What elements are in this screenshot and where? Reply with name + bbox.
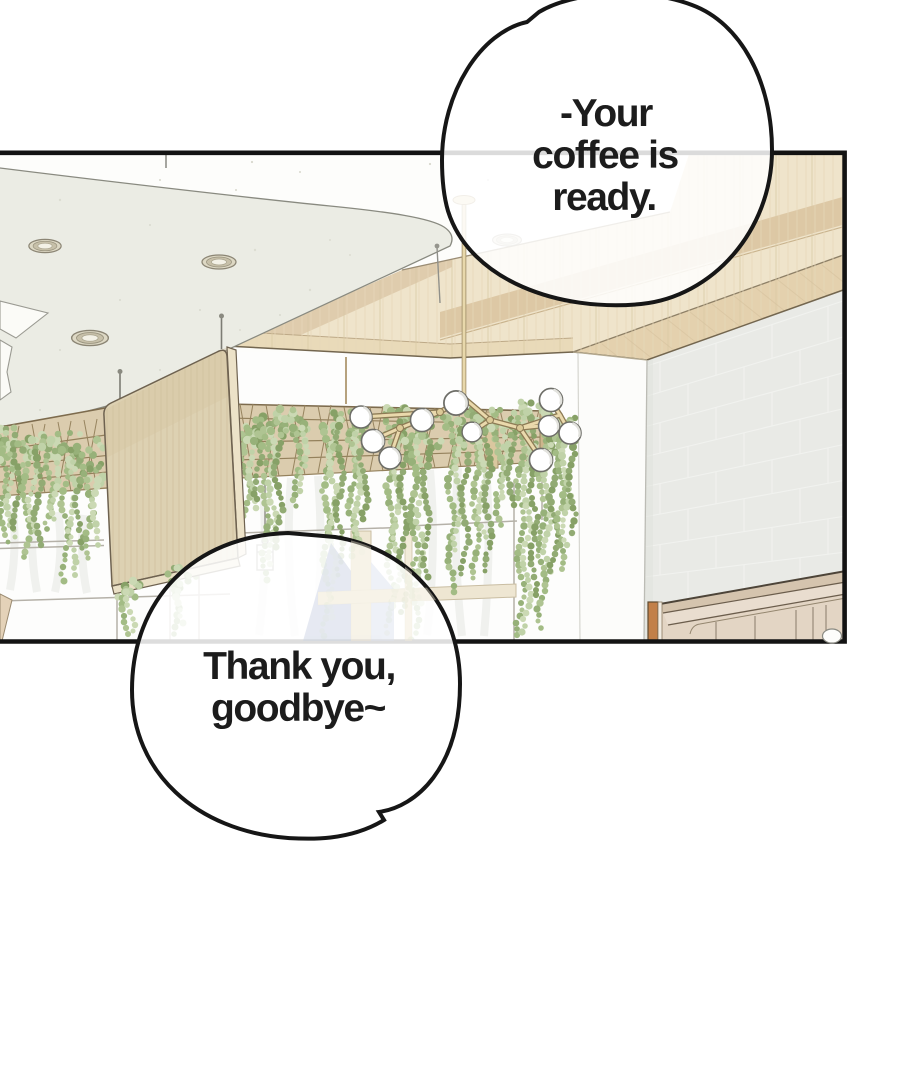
svg-text:Thank you,: Thank you, [203,645,395,688]
svg-text:coffee is: coffee is [532,134,678,177]
svg-text:goodbye~: goodbye~ [211,687,386,730]
svg-text:ready.: ready. [552,176,656,219]
svg-text:-Your: -Your [560,92,653,135]
